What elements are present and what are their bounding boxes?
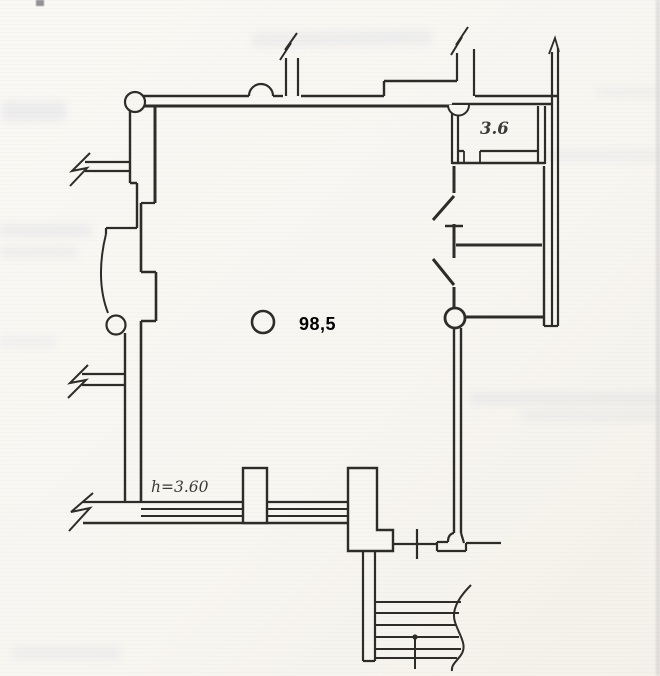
main-room-area-label: 98,5 xyxy=(299,314,336,334)
break-flash-icon xyxy=(451,27,468,55)
wall-break-icon xyxy=(68,365,88,398)
stair-treads xyxy=(375,602,461,658)
wall-pier xyxy=(348,468,393,551)
small-room-area-label: 3.6 xyxy=(480,119,509,138)
door-leaf-icon xyxy=(433,259,454,285)
exterior-wall-right xyxy=(544,38,559,326)
bay-curve xyxy=(101,234,108,313)
corner-knob-icon xyxy=(125,92,145,112)
column-bump-icon xyxy=(249,84,273,96)
stair-direction-dot xyxy=(412,634,417,639)
partition-to-stairs xyxy=(393,328,501,559)
ceiling-height-note: h=3.60 xyxy=(151,478,209,496)
round-column-icon xyxy=(445,308,465,328)
floor-plan-drawing: 98,5 3.6 h=3.60 xyxy=(0,0,660,676)
exterior-wall-top xyxy=(139,81,558,106)
adjoining-wall-stubs xyxy=(68,153,130,398)
exterior-wall-left xyxy=(101,106,156,502)
wall-break-icon xyxy=(69,493,93,531)
wall-cut-symbols xyxy=(280,27,474,96)
interior-partition xyxy=(433,166,544,328)
corner-knob-icon xyxy=(107,316,126,335)
staircase xyxy=(363,551,471,671)
break-flash-icon xyxy=(280,33,297,60)
area-marker-circle xyxy=(252,311,274,333)
floor-plan-scan: 98,5 3.6 h=3.60 xyxy=(0,0,660,676)
column-pillar xyxy=(243,468,267,523)
window-band-bottom xyxy=(69,493,348,531)
wall-break-icon xyxy=(70,153,90,186)
door-leaf-icon xyxy=(433,196,454,220)
